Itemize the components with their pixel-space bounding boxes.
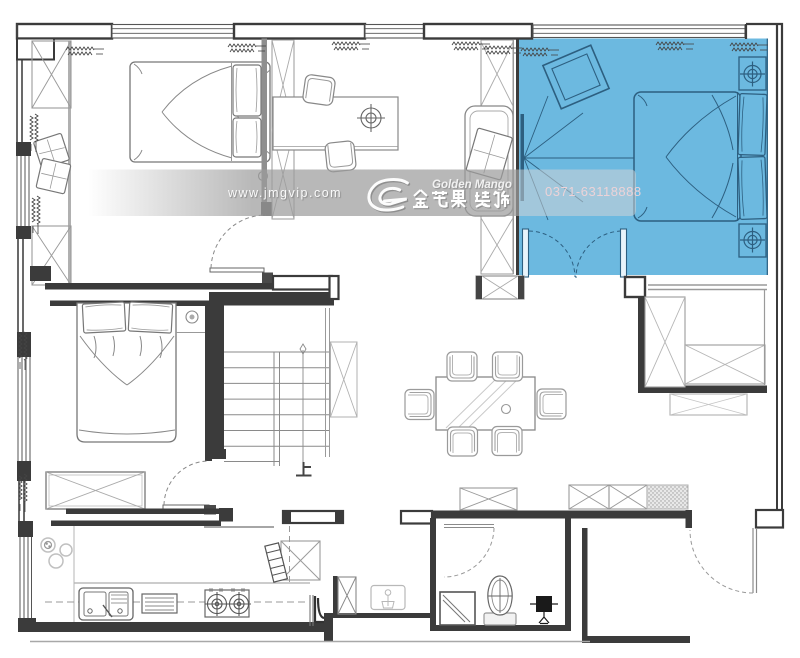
svg-text:Golden Mango: Golden Mango bbox=[432, 179, 512, 191]
svg-text:0371-63118888: 0371-63118888 bbox=[545, 184, 642, 199]
svg-text:www.jmgvip.com: www.jmgvip.com bbox=[227, 186, 342, 200]
